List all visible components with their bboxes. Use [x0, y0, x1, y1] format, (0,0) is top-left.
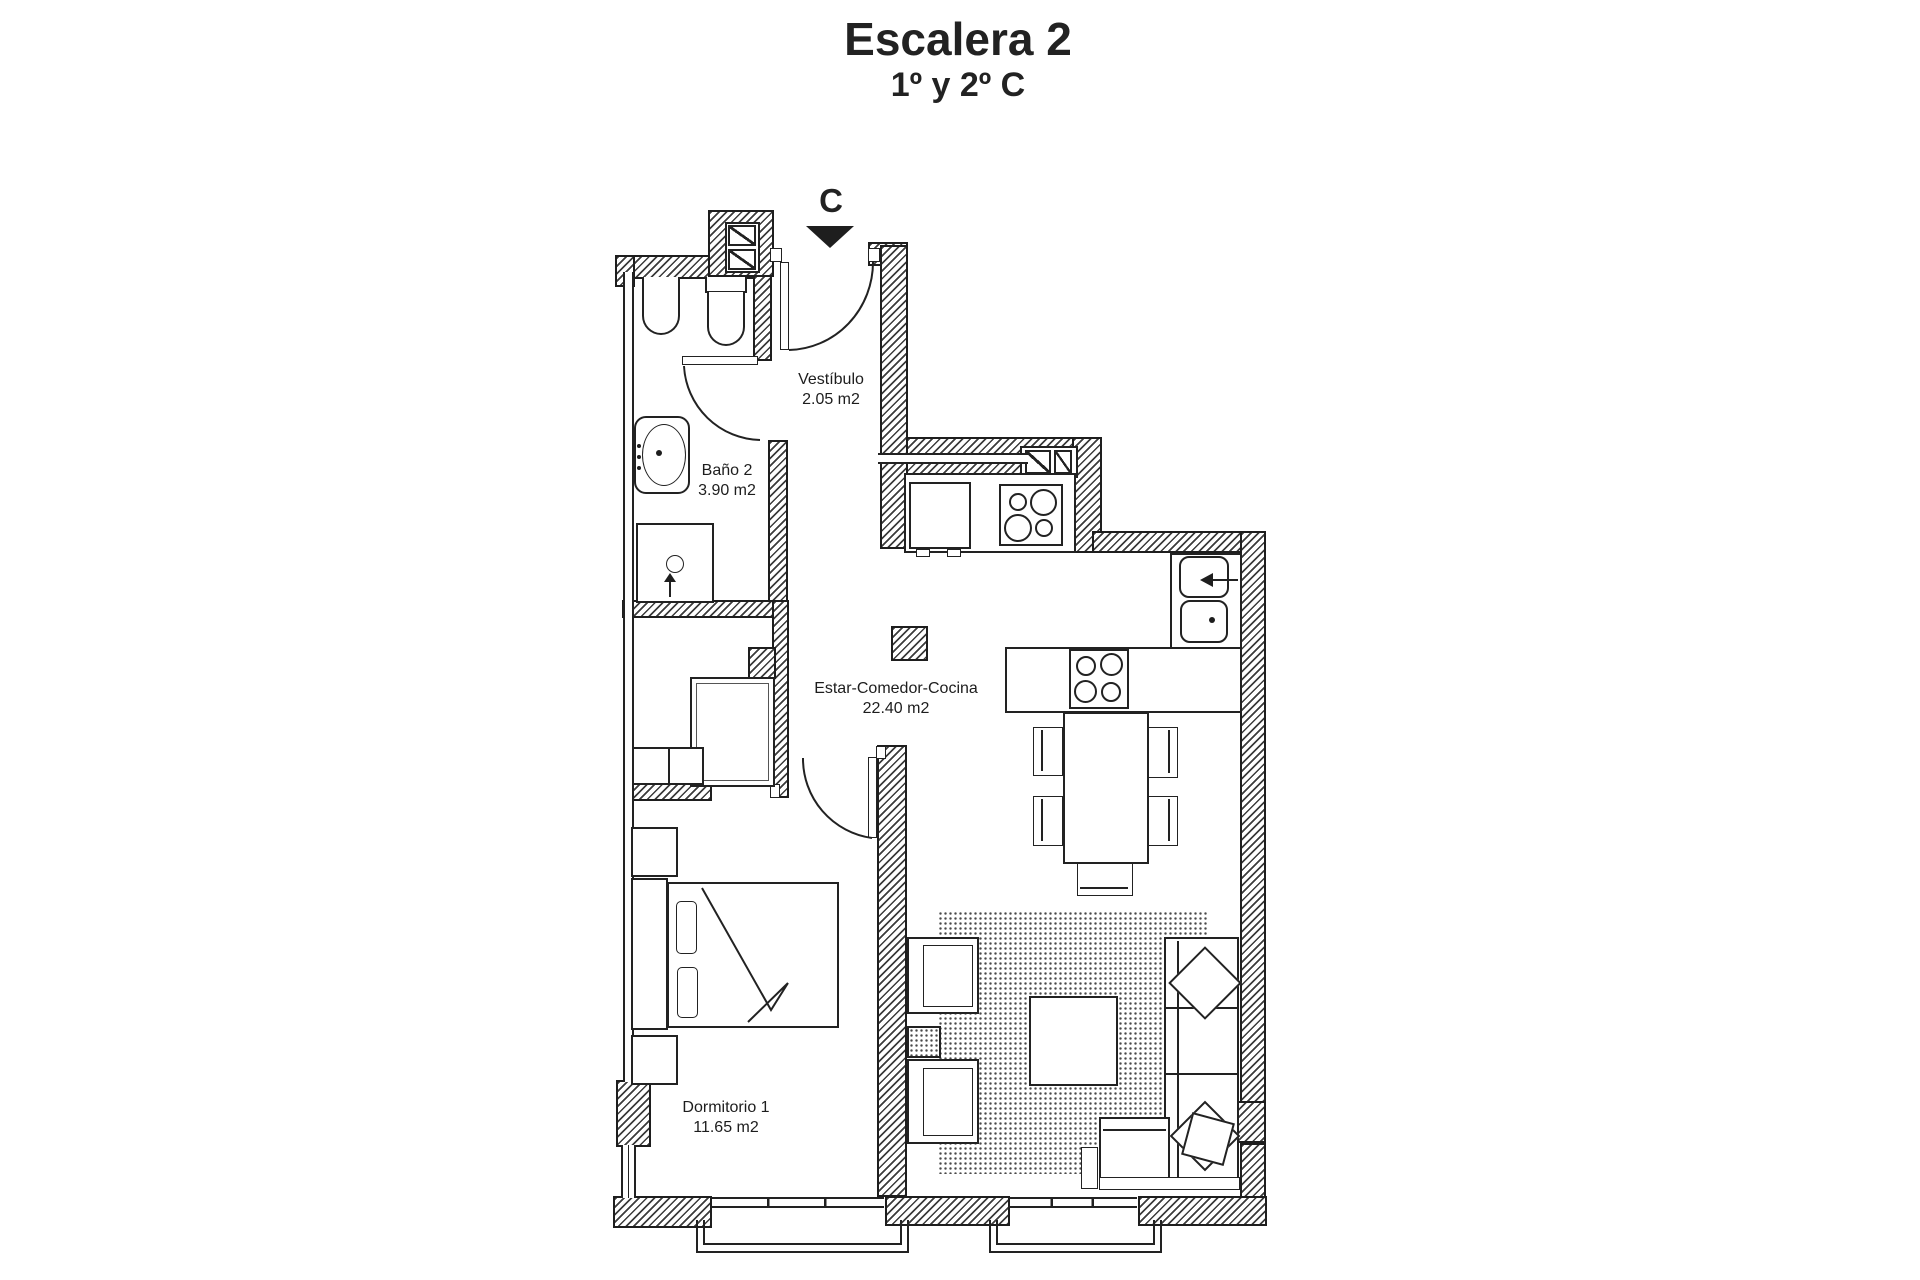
kitchen-sink-icon — [1179, 556, 1229, 598]
sofa-seat — [1099, 1117, 1170, 1179]
burner-icon — [1009, 493, 1027, 511]
entrance-door-arc — [789, 262, 873, 350]
entry-door-jamb — [868, 248, 880, 262]
washbasin-drain — [656, 450, 662, 456]
bathroom-door-leaf — [682, 356, 758, 365]
column-closet — [748, 647, 776, 679]
burner-icon — [1074, 680, 1097, 703]
burner-icon — [1030, 489, 1057, 516]
armchair — [907, 1059, 979, 1144]
burner-icon — [1101, 682, 1121, 702]
wall-bedroom-divider — [877, 745, 907, 1197]
dining-table — [1063, 712, 1149, 864]
closet-shelf — [632, 747, 704, 785]
chair — [1148, 727, 1178, 778]
nightstand — [631, 827, 678, 877]
room-name: Vestíbulo — [750, 370, 912, 390]
room-area: 2.05 m2 — [750, 390, 912, 410]
room-label-bano2: Baño 2 3.90 m2 — [647, 461, 807, 500]
plan-title: Escalera 2 — [658, 12, 1258, 66]
chair — [1033, 796, 1063, 846]
chair — [1077, 863, 1133, 896]
burner-icon — [1076, 656, 1096, 676]
room-name: Baño 2 — [647, 461, 807, 481]
kitchen-sink-icon — [1180, 600, 1228, 643]
appliance-foot — [916, 549, 930, 557]
wall-right — [1240, 531, 1266, 1103]
room-area: 11.65 m2 — [645, 1118, 807, 1138]
washbasin-tap-dot — [637, 466, 641, 470]
window-sill — [703, 1220, 902, 1245]
chair — [1033, 727, 1063, 776]
room-name: Dormitorio 1 — [645, 1098, 807, 1118]
washbasin-tap-dot — [637, 444, 641, 448]
room-name: Estar-Comedor-Cocina — [796, 679, 996, 699]
kitchen-appliance-icon — [909, 482, 971, 549]
side-table — [1081, 1147, 1098, 1189]
entrance-door-leaf — [780, 262, 789, 350]
room-label-estar: Estar-Comedor-Cocina 22.40 m2 — [796, 679, 996, 718]
toilet-tank-icon — [705, 277, 747, 293]
sofa-base-band — [1099, 1177, 1240, 1190]
armchair — [907, 937, 979, 1014]
bedroom-door-jamb — [876, 746, 886, 759]
vent-shaft-icon — [1025, 450, 1051, 474]
entrance-arrow-icon — [806, 226, 854, 248]
left-side-window — [621, 1145, 636, 1198]
burner-icon — [1035, 519, 1053, 537]
bed-headboard — [631, 878, 668, 1030]
room-label-dormitorio1: Dormitorio 1 11.65 m2 — [645, 1098, 807, 1137]
bidet-icon — [642, 277, 680, 335]
column-living — [891, 626, 928, 661]
washbasin-tap-dot — [637, 455, 641, 459]
room-label-vestibulo: Vestíbulo 2.05 m2 — [750, 370, 912, 409]
coffee-table — [1029, 996, 1118, 1086]
vent-shaft-icon — [728, 225, 756, 246]
chair — [1148, 796, 1178, 846]
room-area: 3.90 m2 — [647, 481, 807, 501]
bathroom-door-arc — [684, 366, 760, 440]
wall-top-right — [1092, 531, 1264, 553]
pillow — [677, 967, 698, 1018]
window-sill — [996, 1220, 1155, 1245]
bedroom-door-leaf — [868, 757, 877, 838]
window — [1010, 1197, 1137, 1208]
vent-shaft-icon — [728, 249, 756, 270]
toilet-bowl-icon — [707, 292, 745, 346]
appliance-foot — [947, 549, 961, 557]
room-area: 22.40 m2 — [796, 699, 996, 719]
vent-shaft-icon — [1054, 450, 1072, 474]
entrance-marker-label: C — [806, 182, 856, 220]
nightstand — [631, 1035, 678, 1085]
entry-door-jamb — [770, 248, 782, 262]
window — [712, 1197, 884, 1208]
burner-icon — [1100, 653, 1123, 676]
side-table — [907, 1026, 941, 1058]
bedroom-door-arc — [803, 758, 872, 838]
burner-icon — [1004, 514, 1032, 542]
floor-plan-sheet: Escalera 2 1º y 2º C C — [0, 0, 1920, 1280]
pillow — [676, 901, 697, 954]
shower-drain-icon — [666, 555, 684, 573]
kitchen-high-cupboard-line — [878, 453, 1028, 464]
wall-bath-right-upper — [753, 275, 772, 361]
plan-subtitle: 1º y 2º C — [758, 66, 1158, 105]
sink-drain — [1209, 617, 1215, 623]
